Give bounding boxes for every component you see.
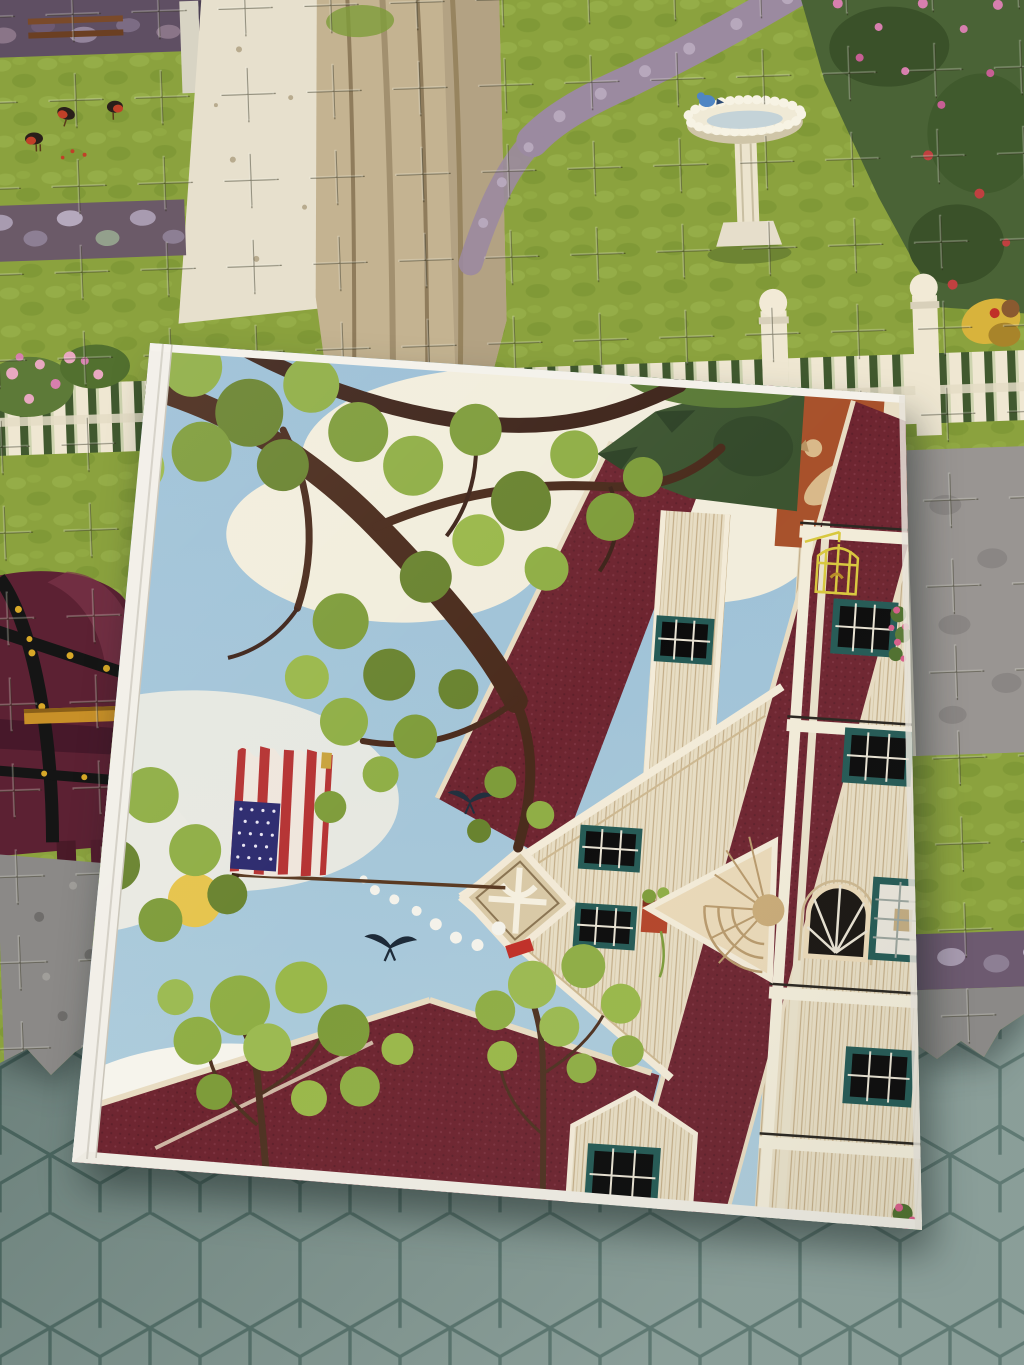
lid-white-border [0,0,1024,1365]
puzzle-box-lid [0,0,1024,1365]
photo-scene [0,0,1024,1365]
hayloft-window [902,404,965,507]
